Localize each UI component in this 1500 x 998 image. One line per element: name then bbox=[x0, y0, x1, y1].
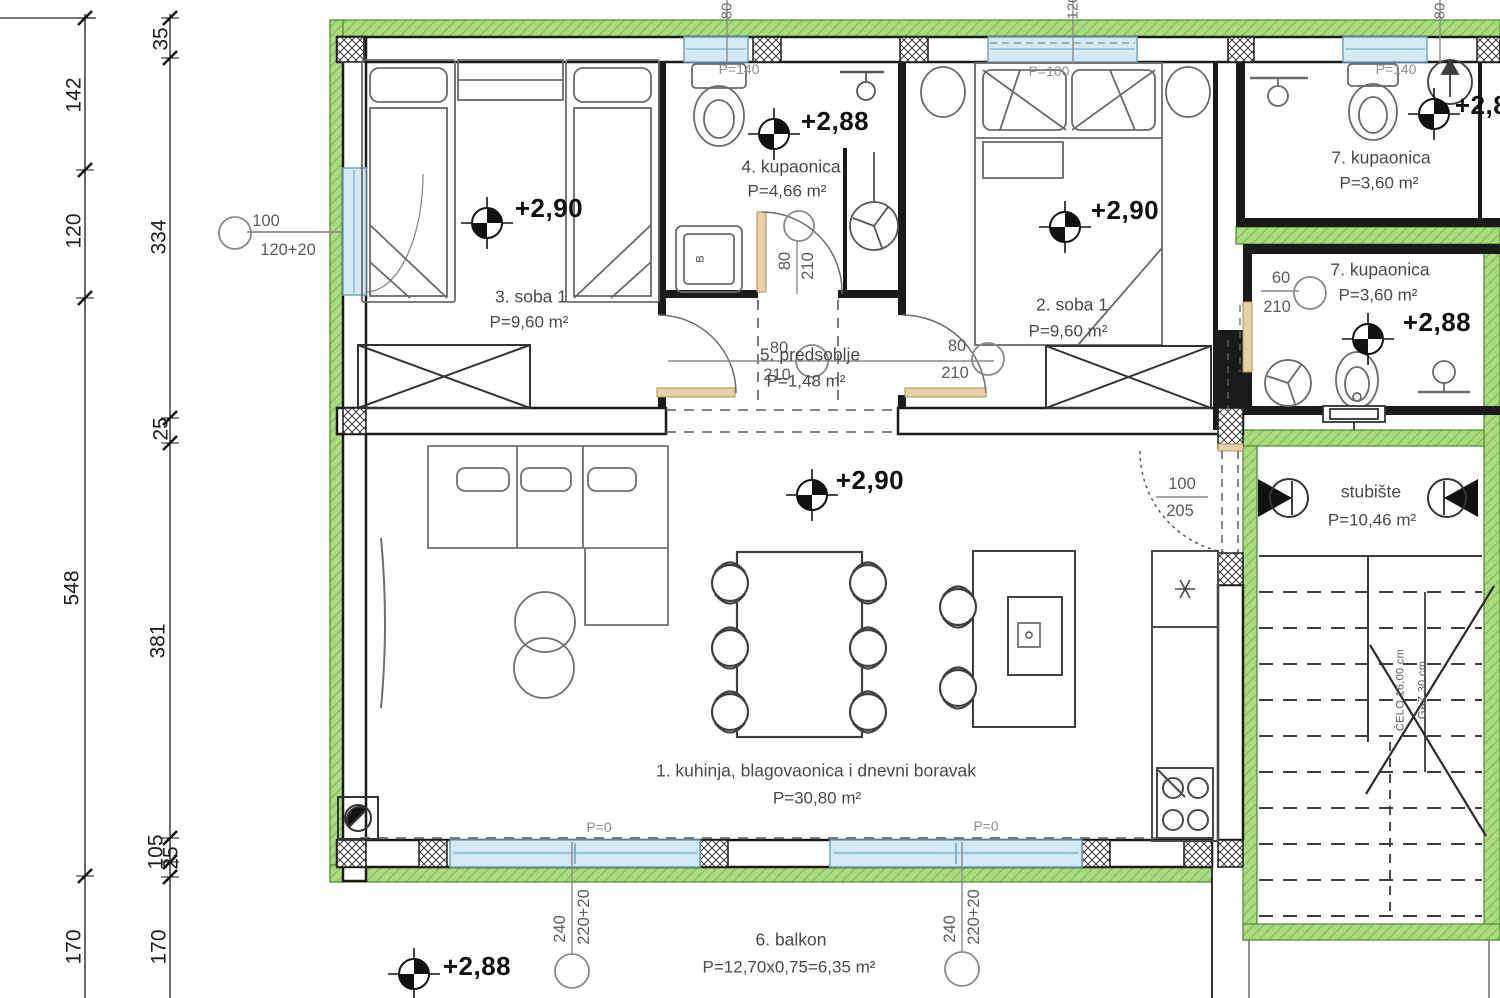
dim-inner-35: 35 bbox=[151, 27, 172, 50]
nightstand bbox=[458, 60, 563, 100]
room-label-soba3: 3. soba 1 bbox=[495, 288, 567, 306]
callout-window-left-h: 120+20 bbox=[260, 242, 316, 259]
elevation-bath7-top: +2,88 bbox=[1455, 92, 1500, 118]
sofa bbox=[428, 446, 668, 625]
door-leaf-hall-right bbox=[905, 388, 986, 397]
dim-outer-170: 170 bbox=[64, 929, 85, 964]
callout-balcony2-h: 220+20 bbox=[966, 889, 983, 945]
callout-entry-door-h: 205 bbox=[1166, 503, 1194, 520]
washing-machine bbox=[676, 226, 742, 292]
benchmark-bath4 bbox=[748, 108, 800, 160]
windows bbox=[343, 37, 1427, 867]
parapet-bath7: P=140 bbox=[1376, 62, 1417, 76]
stairs bbox=[1258, 479, 1494, 916]
window-soba2-top bbox=[988, 37, 1137, 62]
room-label-bath4: 4. kupaonica bbox=[741, 158, 840, 176]
stair-direction-arrow-left bbox=[1258, 479, 1308, 517]
elevation-balkon: +2,88 bbox=[443, 953, 511, 979]
room-label-bath7: 7. kupaonica bbox=[1330, 261, 1429, 279]
callout-bath4-door-w: 80 bbox=[777, 252, 794, 270]
elevation-soba2: +2,90 bbox=[1091, 197, 1159, 223]
callout-bath7-door-w: 60 bbox=[1272, 270, 1290, 287]
stair-direction-arrow-right bbox=[1428, 479, 1478, 517]
balcony-door-2 bbox=[830, 840, 1082, 867]
dim-outer-120: 120 bbox=[64, 213, 85, 248]
dim-inner-25: 25 bbox=[151, 417, 172, 440]
callout-bath7-door-h: 210 bbox=[1263, 299, 1291, 316]
freezer-star-icon bbox=[1175, 580, 1195, 598]
structural-walls bbox=[337, 37, 1500, 881]
window-bath7-top bbox=[1343, 37, 1427, 62]
furniture-soba3 bbox=[358, 60, 659, 408]
window-swing-soba3 bbox=[366, 174, 423, 292]
shower-head-icon bbox=[1265, 360, 1311, 406]
floor-plan-drawing bbox=[0, 0, 1500, 998]
room-label-stubiste: stubište bbox=[1341, 483, 1401, 501]
room-area-kuhinja: P=30,80 m² bbox=[773, 790, 861, 807]
curtain-line bbox=[381, 538, 385, 708]
room-area-stubiste: P=10,46 m² bbox=[1328, 512, 1416, 529]
parapet-zero-left: P=0 bbox=[586, 820, 611, 834]
bed-single-2 bbox=[566, 60, 659, 302]
elevation-living: +2,90 bbox=[836, 467, 904, 493]
width-window-bath7: 80 bbox=[1433, 3, 1448, 20]
width-window-bath4: 80 bbox=[720, 3, 735, 20]
dim-outer-142: 142 bbox=[64, 77, 85, 112]
bedside-pouf-left bbox=[921, 67, 965, 117]
callout-window-left-w: 100 bbox=[252, 213, 280, 230]
room-area-soba3: P=9,60 m² bbox=[490, 314, 569, 331]
sink-faucet-icon bbox=[1418, 361, 1470, 392]
room-area-bath4: P=4,66 m² bbox=[748, 183, 827, 200]
bed-single-1 bbox=[362, 60, 455, 302]
callout-bath4-door-h: 210 bbox=[800, 252, 817, 280]
door-swing-hall-left bbox=[658, 315, 736, 393]
callout-hall-right-h: 210 bbox=[941, 365, 969, 382]
dim-inner-334: 334 bbox=[149, 219, 170, 254]
room-label-kuhinja: 1. kuhinja, blagovaonica i dnevni borava… bbox=[656, 762, 976, 780]
benchmark-soba2 bbox=[1039, 201, 1091, 253]
room-area-soba2: P=9,60 m² bbox=[1029, 323, 1108, 340]
stove bbox=[1157, 768, 1213, 838]
dim-outer-548: 548 bbox=[62, 570, 83, 605]
parapet-soba2: P=100 bbox=[1029, 64, 1070, 78]
washer-tag: B bbox=[696, 255, 707, 262]
benchmark-soba3 bbox=[461, 197, 513, 249]
dining-table bbox=[737, 552, 862, 737]
stair-tread-note: GAZ 30 cm bbox=[1418, 661, 1429, 719]
washbasin bbox=[1323, 406, 1385, 430]
room-label-bath7-top: 7. kupaonica bbox=[1331, 149, 1430, 167]
callout-balcony1-h: 220+20 bbox=[576, 889, 593, 945]
furniture-living bbox=[338, 446, 1218, 841]
elevation-bath4: +2,88 bbox=[801, 108, 869, 134]
coffee-table bbox=[515, 592, 575, 652]
room-label-balkon: 6. balkon bbox=[755, 931, 826, 949]
shower-head-icon bbox=[850, 152, 898, 250]
door-leaf-bath4 bbox=[757, 212, 766, 292]
room-area-bath7: P=3,60 m² bbox=[1339, 287, 1418, 304]
room-area-balkon: P=12,70x0,75=6,35 m² bbox=[703, 959, 876, 976]
dim-inner-25b: 25 bbox=[161, 846, 182, 869]
sink-faucet-icon bbox=[840, 72, 884, 100]
callout-hall-right-w: 80 bbox=[948, 338, 966, 355]
door-sill-entry bbox=[1218, 444, 1243, 451]
window-bath4-top bbox=[684, 37, 748, 62]
dim-inner-170: 170 bbox=[149, 929, 170, 964]
elevation-soba3: +2,90 bbox=[515, 195, 583, 221]
room-area-bath7-top: P=3,60 m² bbox=[1340, 175, 1419, 192]
room-label-predsoblje: 5. predsoblje bbox=[760, 346, 860, 364]
floor-plan: 142 120 548 170 35 334 25 381 105 25 170… bbox=[0, 0, 1500, 998]
stair-riser-note: ČELO 16,00 cm bbox=[1396, 649, 1407, 731]
callout-entry-door-w: 100 bbox=[1168, 476, 1196, 493]
callout-balcony1-w: 240 bbox=[552, 915, 569, 943]
door-leaf-hall-left bbox=[657, 388, 735, 397]
kitchen-counter bbox=[1152, 551, 1218, 841]
parapet-zero-right: P=0 bbox=[973, 819, 998, 833]
concrete-piers bbox=[337, 37, 1500, 867]
kitchen-island bbox=[973, 551, 1075, 727]
coffee-table bbox=[514, 638, 574, 698]
bedside-pouf-right bbox=[1166, 67, 1210, 117]
parapet-bath4: P=140 bbox=[719, 62, 760, 76]
toilet bbox=[1336, 352, 1378, 408]
benchmark-living bbox=[786, 469, 838, 521]
wardrobe-soba3 bbox=[358, 345, 530, 408]
dim-inner-381: 381 bbox=[148, 623, 169, 658]
room-label-soba2: 2. soba 1 bbox=[1036, 296, 1108, 314]
wardrobe-soba2 bbox=[1046, 346, 1211, 408]
elevation-bath7: +2,88 bbox=[1403, 309, 1471, 335]
sink-faucet-icon bbox=[1250, 78, 1308, 106]
benchmark-bath7 bbox=[1342, 313, 1394, 365]
benchmark-bath7-top bbox=[1408, 88, 1460, 140]
callout-balcony2-w: 240 bbox=[942, 915, 959, 943]
exterior-green-walls bbox=[330, 20, 1500, 940]
balcony-door-1 bbox=[450, 840, 700, 867]
door-sill-bath7 bbox=[1243, 302, 1252, 372]
room-area-predsoblje: P=1,48 m² bbox=[767, 373, 846, 390]
width-window-soba2: 120 bbox=[1066, 0, 1081, 20]
benchmark-balkon bbox=[388, 948, 440, 998]
